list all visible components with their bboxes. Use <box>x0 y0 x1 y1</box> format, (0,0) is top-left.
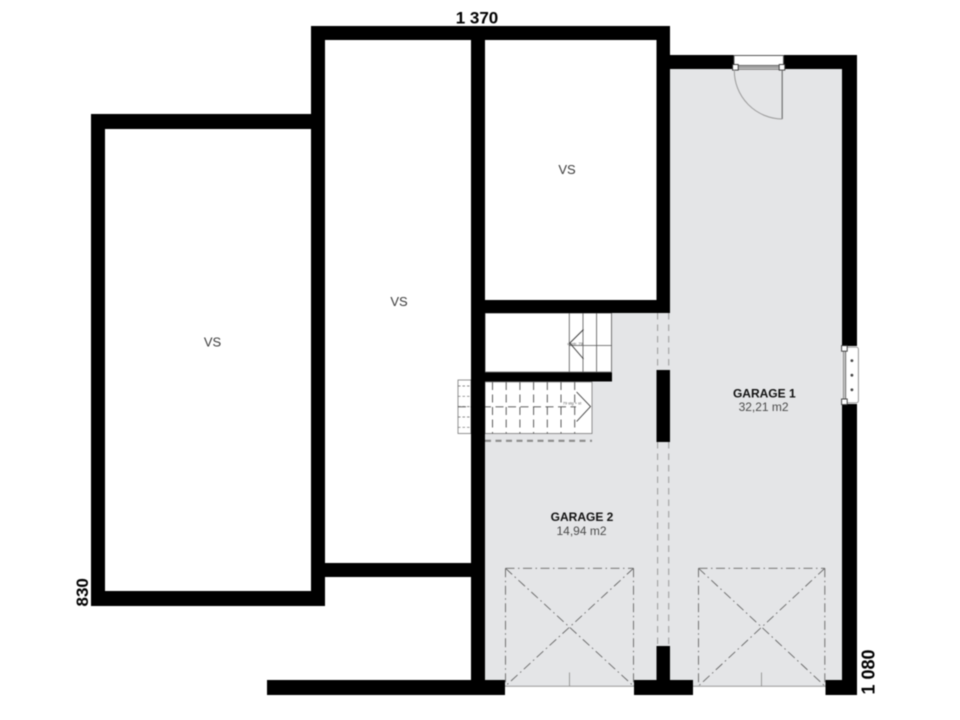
svg-text:1 370: 1 370 <box>456 9 499 28</box>
svg-text:79 stg + st: 79 stg + st <box>563 401 582 406</box>
svg-text:VS: VS <box>558 162 576 177</box>
svg-text:VS: VS <box>390 294 408 309</box>
svg-text:830: 830 <box>73 578 92 606</box>
svg-text:1 080: 1 080 <box>859 649 879 694</box>
svg-text:opptr. 79: opptr. 79 <box>567 341 583 346</box>
svg-text:VS: VS <box>204 335 222 350</box>
svg-text:GARAGE 2: GARAGE 2 <box>551 510 614 524</box>
svg-text:32,21 m2: 32,21 m2 <box>739 400 789 414</box>
svg-text:14,94 m2: 14,94 m2 <box>556 524 606 538</box>
svg-text:GARAGE 1: GARAGE 1 <box>733 386 796 400</box>
